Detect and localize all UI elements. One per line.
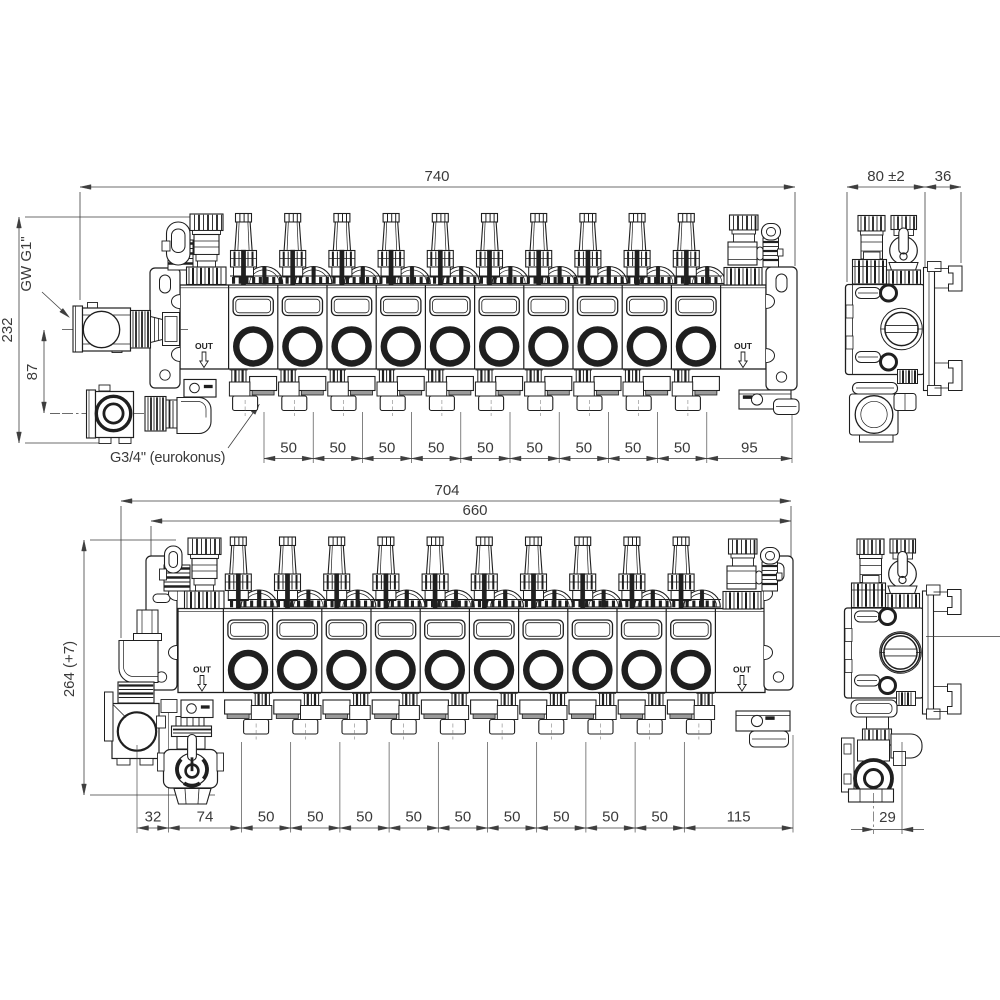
svg-text:50: 50	[258, 809, 275, 826]
svg-text:80 ±2: 80 ±2	[867, 168, 904, 185]
svg-text:50: 50	[307, 809, 324, 826]
svg-text:29: 29	[879, 809, 896, 826]
svg-text:50: 50	[602, 809, 619, 826]
svg-text:G3/4" (eurokonus): G3/4" (eurokonus)	[110, 450, 225, 466]
svg-text:OUT: OUT	[193, 665, 212, 675]
svg-text:704: 704	[434, 482, 459, 499]
svg-text:87: 87	[24, 364, 41, 381]
svg-text:740: 740	[424, 168, 449, 185]
svg-text:OUT: OUT	[195, 341, 214, 351]
svg-text:32: 32	[145, 809, 162, 826]
svg-text:50: 50	[553, 809, 570, 826]
svg-text:50: 50	[625, 440, 642, 457]
svg-text:50: 50	[428, 440, 445, 457]
svg-text:50: 50	[504, 809, 521, 826]
svg-text:50: 50	[356, 809, 373, 826]
svg-text:50: 50	[455, 809, 472, 826]
svg-text:OUT: OUT	[733, 665, 752, 675]
svg-text:264 (+7): 264 (+7)	[61, 641, 78, 697]
svg-text:660: 660	[462, 502, 487, 519]
svg-text:50: 50	[280, 440, 297, 457]
svg-text:50: 50	[575, 440, 592, 457]
svg-text:74: 74	[197, 809, 214, 826]
svg-text:36: 36	[935, 168, 952, 185]
svg-text:232: 232	[0, 317, 16, 342]
svg-text:50: 50	[379, 440, 396, 457]
svg-text:50: 50	[526, 440, 543, 457]
svg-text:115: 115	[727, 809, 751, 826]
svg-text:95: 95	[741, 440, 758, 457]
svg-text:50: 50	[329, 440, 346, 457]
svg-text:50: 50	[405, 809, 422, 826]
svg-text:GW G1": GW G1"	[18, 236, 35, 291]
svg-text:OUT: OUT	[734, 341, 753, 351]
svg-text:50: 50	[477, 440, 494, 457]
svg-text:50: 50	[651, 809, 668, 826]
svg-text:50: 50	[674, 440, 691, 457]
